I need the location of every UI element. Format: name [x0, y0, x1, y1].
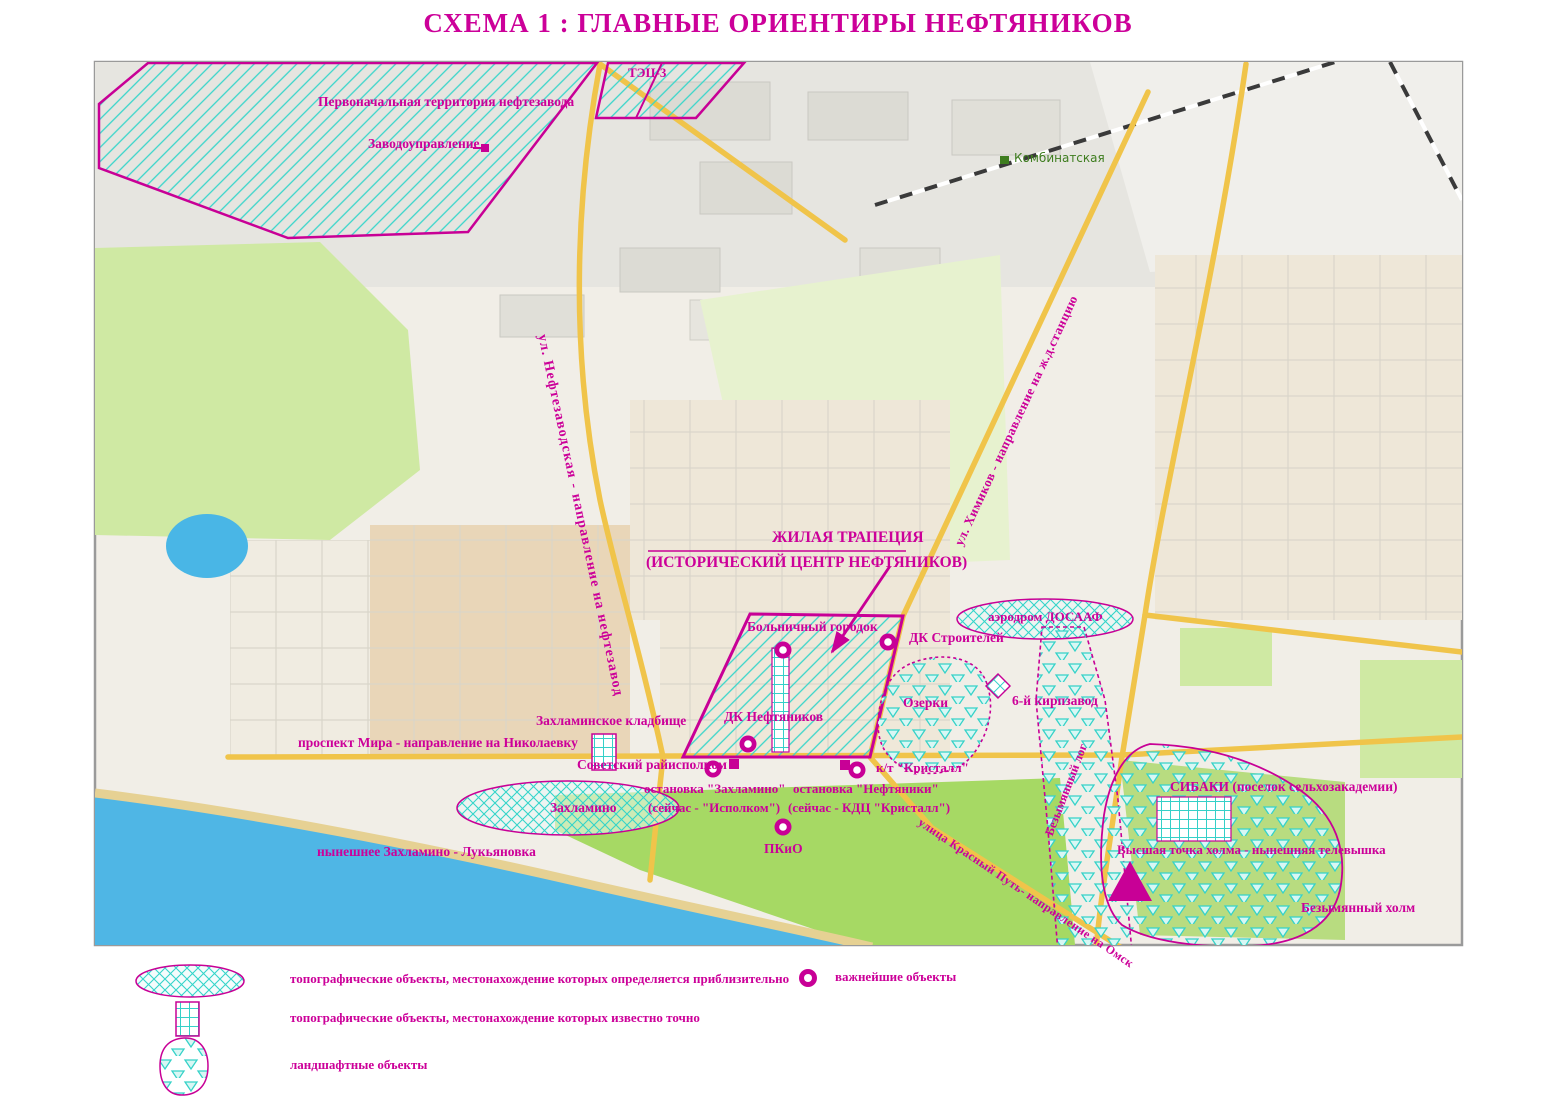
zakhlamino-label: Захламино: [550, 801, 616, 816]
sibaki-label: СИБАКИ (поселок сельхозакадемии): [1170, 780, 1397, 795]
legend-exact-icon: [176, 1002, 199, 1036]
pkio-label: ПКиО: [764, 842, 803, 857]
scheme-page: СХЕМА 1 : ГЛАВНЫЕ ОРИЕНТИРЫ НЕФТЯНИКОВ П…: [0, 0, 1556, 1108]
bus-stop-square-neftyaniki: [840, 760, 850, 770]
dk-stroiteley-label: ДК Строителей: [909, 631, 1004, 646]
legend-important-label: важнейшие объекты: [835, 970, 956, 984]
trapezoid-label-line2: (ИСТОРИЧЕСКИЙ ЦЕНТР НЕФТЯНИКОВ): [646, 554, 967, 571]
tv-tower-label: Высшая точка холма - нынешняя телевышка: [1117, 843, 1386, 857]
factory-office-marker: [481, 144, 489, 152]
legend-landscape-label: ландшафтные объекты: [290, 1058, 427, 1072]
legend-exact-label: топографические объекты, местонахождение…: [290, 1011, 700, 1025]
sibaki-marker: [1157, 797, 1231, 841]
tec3-label: ТЭЦ-3: [628, 66, 666, 80]
legend-approx-label: топографические объекты, местонахождение…: [290, 972, 789, 986]
station-icon: [1000, 156, 1009, 164]
bus-stop-square-zakhlamino: [729, 759, 739, 769]
road-label-mira: проспект Мира - направление на Николаевк…: [298, 736, 578, 751]
legend-approx-icon: [136, 965, 244, 997]
station-label: Комбинатская: [1014, 152, 1105, 165]
trapezoid-label-line1: ЖИЛАЯ ТРАПЕЦИЯ: [772, 529, 924, 546]
stop-neftyaniki-label-line1: остановка "Нефтяники": [793, 782, 939, 796]
ozerki-label: Озерки: [903, 696, 948, 711]
former-zakhlamino-label: нынешнее Захламино - Лукьяновка: [317, 845, 536, 860]
stop-neftyaniki-label-line2: (сейчас - КДЦ "Кристалл"): [788, 801, 950, 815]
hospital-block-marker: [772, 648, 789, 752]
kholm-label: Безымянный холм: [1301, 901, 1415, 916]
raiispolkom-label: Советский райисполком: [577, 758, 727, 773]
kt-kristall-label: к/т "Кристалл": [876, 761, 969, 775]
refinery-territory-label: Первоначальная территория нефтезавода: [318, 95, 574, 110]
brick-factory-label: 6-й кирпзавод: [1012, 694, 1098, 709]
factory-office-label: Заводоуправление: [368, 137, 480, 152]
legend-landscape-icon: [160, 1038, 208, 1095]
cemetery-label: Захламинское кладбище: [536, 714, 686, 729]
aerodrome-label: аэродром ДОСААФ: [988, 610, 1103, 624]
dk-neftyanikov-label: ДК Нефтяников: [724, 710, 823, 725]
hospital-label: Больничный городок: [747, 620, 878, 635]
lake: [166, 514, 248, 578]
page-title: СХЕМА 1 : ГЛАВНЫЕ ОРИЕНТИРЫ НЕФТЯНИКОВ: [0, 8, 1556, 39]
stop-zakhlamino-label-line1: остановка "Захламино": [644, 782, 785, 796]
stop-zakhlamino-label-line2: (сейчас - "Исполком"): [648, 801, 780, 815]
